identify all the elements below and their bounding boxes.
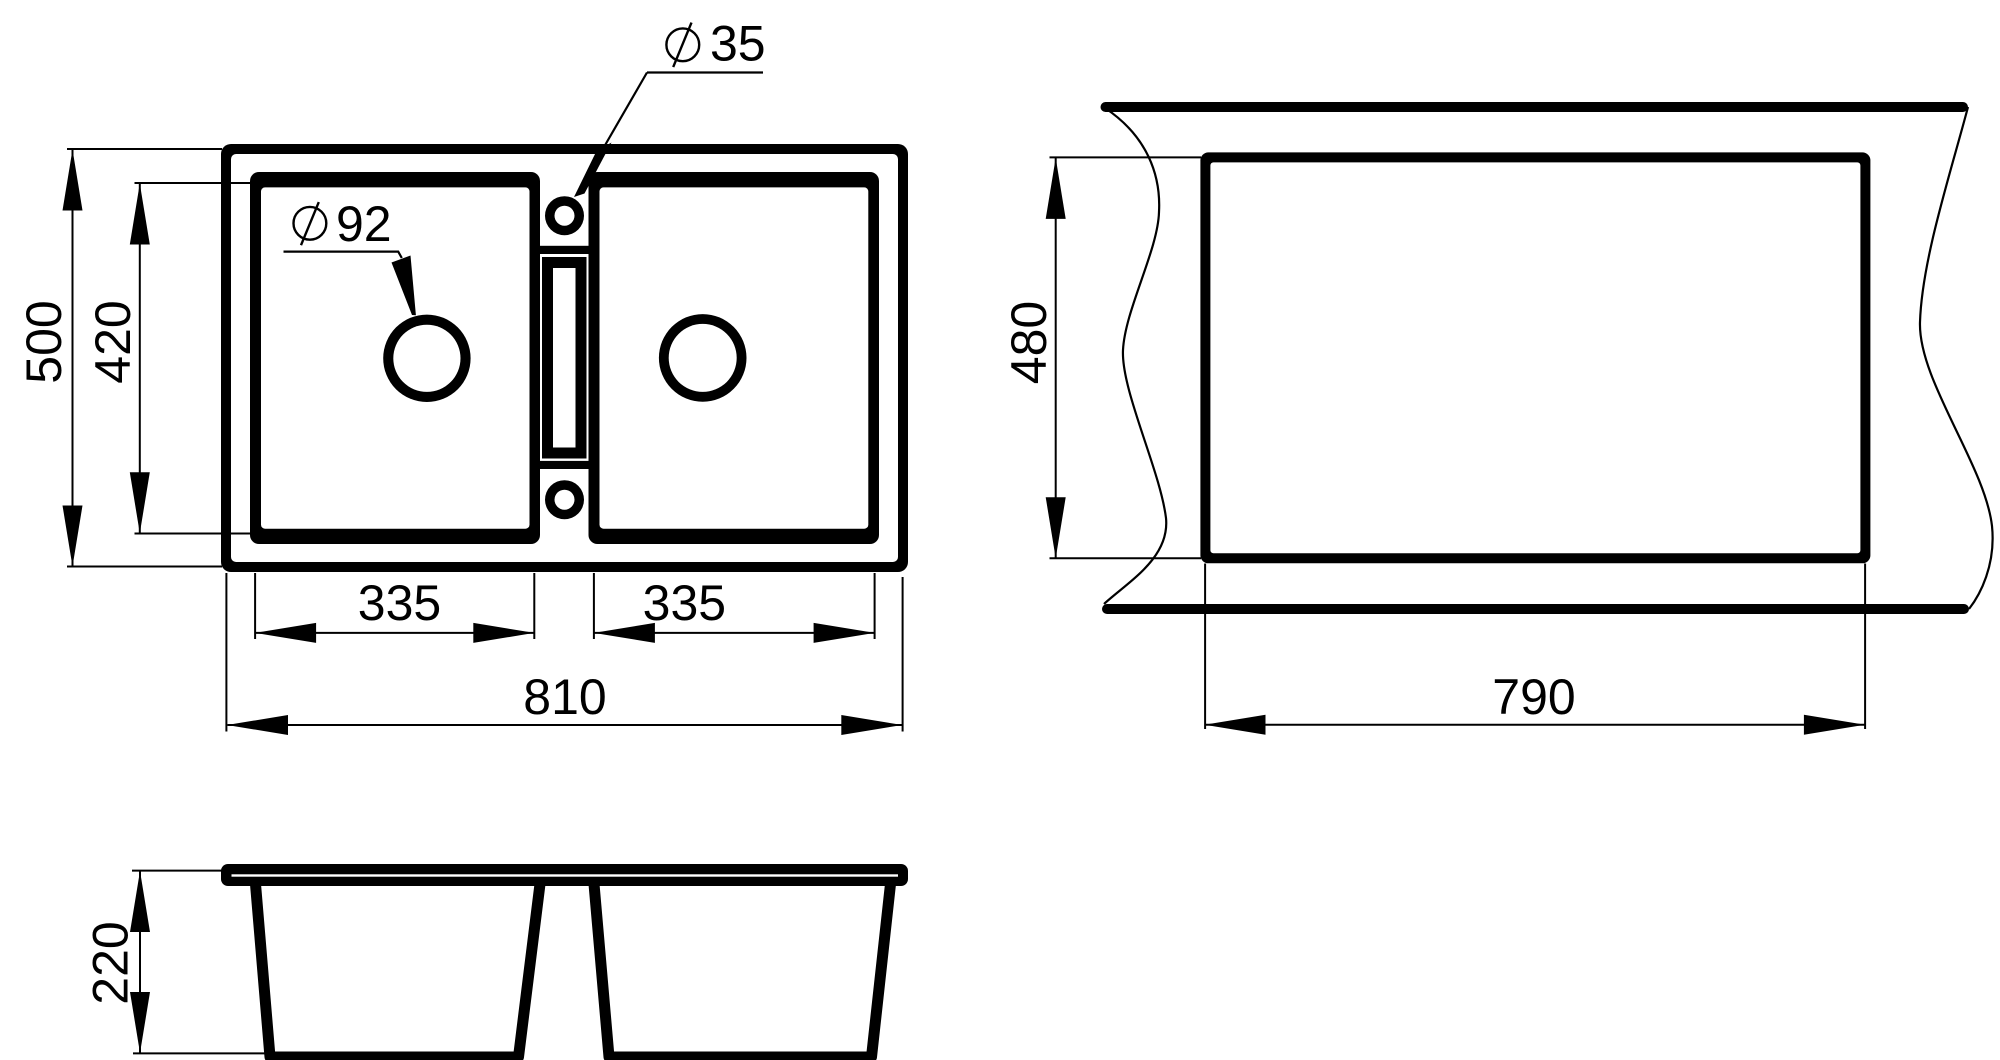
svg-text:335: 335 xyxy=(358,575,441,631)
svg-text:810: 810 xyxy=(523,669,606,725)
svg-text:35: 35 xyxy=(710,15,766,71)
svg-text:220: 220 xyxy=(83,921,139,1004)
svg-text:480: 480 xyxy=(1001,301,1057,384)
svg-text:500: 500 xyxy=(16,300,72,383)
svg-text:335: 335 xyxy=(643,575,726,631)
svg-text:420: 420 xyxy=(85,300,141,383)
svg-text:790: 790 xyxy=(1492,669,1575,725)
svg-text:92: 92 xyxy=(336,196,392,252)
